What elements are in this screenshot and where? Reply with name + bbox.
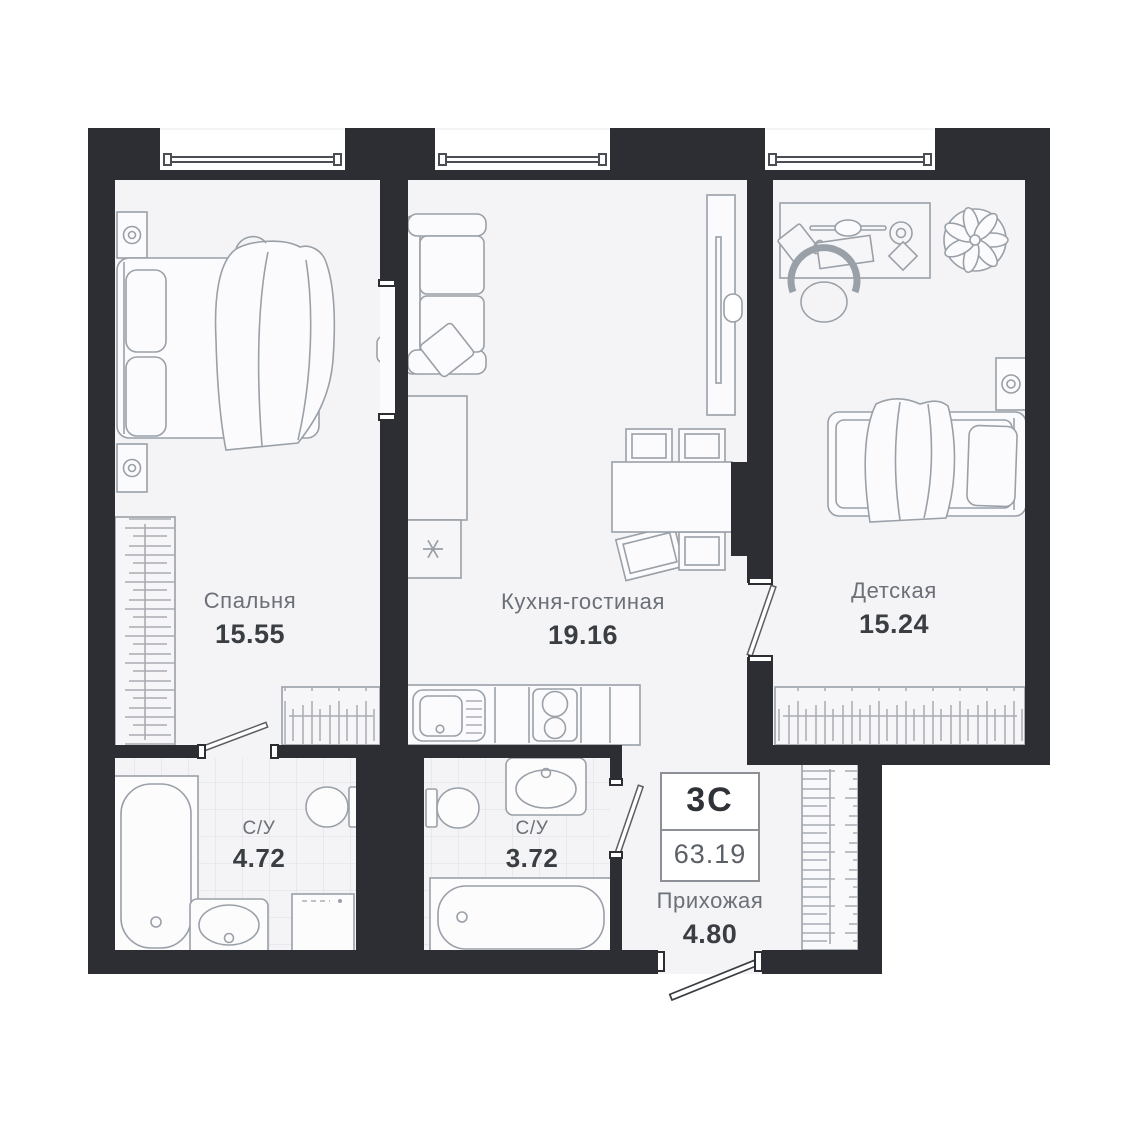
wall-segment	[115, 745, 200, 758]
room-label-kitchen: Кухня-гостиная 19.16	[501, 589, 665, 651]
room-label-bedroom: Спальня 15.55	[204, 588, 297, 650]
window-glazing	[169, 156, 336, 163]
window-glazing	[774, 156, 926, 163]
window-cap	[438, 153, 447, 166]
room-area: 19.16	[501, 620, 665, 651]
door-jamb	[197, 744, 206, 759]
apartment-type-badge: 3С 63.19	[660, 772, 760, 882]
room-label-children: Детская 15.24	[851, 578, 937, 640]
wall-segment	[610, 859, 622, 956]
room-name: Кухня-гостиная	[501, 589, 665, 615]
room-area: 15.24	[851, 609, 937, 640]
window-cap	[333, 153, 342, 166]
room-area: 4.80	[657, 919, 764, 950]
room-label-bath2: С/У 3.72	[506, 818, 559, 874]
wall-segment	[345, 128, 435, 180]
wall-segment	[88, 128, 115, 974]
wall-segment	[747, 657, 773, 765]
door-jamb	[748, 577, 773, 585]
door-jamb	[656, 951, 665, 972]
window-glazing	[444, 156, 601, 163]
window-sill	[160, 170, 345, 180]
apartment-floorplan: Спальня 15.55 Кухня-гостиная 19.16 Детск…	[0, 0, 1144, 1144]
door-jamb	[378, 279, 396, 287]
room-label-bath1: С/У 4.72	[233, 818, 286, 874]
window	[160, 130, 345, 170]
room-name: Спальня	[204, 588, 297, 614]
wall-segment	[610, 128, 765, 180]
room-name: Детская	[851, 578, 937, 604]
wall-pilaster	[731, 462, 747, 556]
room-area: 3.72	[506, 843, 559, 874]
wall-segment	[356, 745, 424, 957]
room-name: Прихожая	[657, 888, 764, 914]
wall-segment	[408, 745, 622, 758]
window-sill	[435, 170, 610, 180]
wall-segment	[858, 748, 882, 974]
door-jamb	[378, 413, 396, 421]
window-cap	[768, 153, 777, 166]
room-name: С/У	[506, 818, 559, 840]
window-sill	[765, 170, 935, 180]
floor-upper	[88, 128, 1050, 765]
door-opening	[380, 287, 395, 413]
room-name: С/У	[233, 818, 286, 840]
door-jamb	[748, 655, 773, 663]
window	[765, 130, 935, 170]
door-jamb	[609, 851, 623, 859]
apartment-total-area: 63.19	[662, 831, 758, 880]
window-cap	[598, 153, 607, 166]
door-jamb	[609, 778, 623, 786]
wall-segment	[1025, 128, 1050, 765]
wall-segment	[747, 180, 773, 583]
room-area: 4.72	[233, 843, 286, 874]
room-label-hall: Прихожая 4.80	[657, 888, 764, 950]
window-cap	[163, 153, 172, 166]
wall-segment	[610, 752, 622, 779]
window	[435, 130, 610, 170]
wall-segment	[380, 180, 408, 758]
window-cap	[923, 153, 932, 166]
door-jamb	[754, 951, 763, 972]
wall-segment	[747, 745, 1050, 765]
apartment-type: 3С	[662, 774, 758, 831]
room-area: 15.55	[204, 619, 297, 650]
door-jamb	[270, 744, 279, 759]
